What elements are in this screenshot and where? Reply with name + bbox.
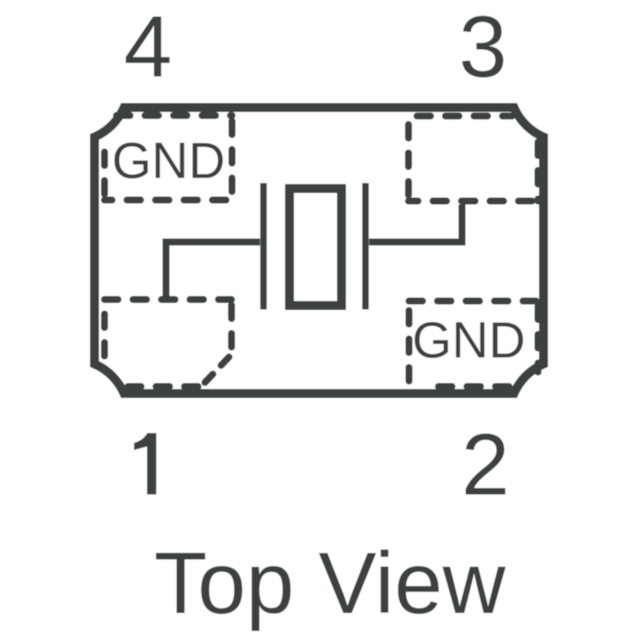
- svg-text:2: 2: [461, 417, 509, 514]
- svg-text:4: 4: [124, 0, 172, 96]
- svg-text:3: 3: [459, 0, 507, 96]
- svg-text:GND: GND: [112, 132, 225, 189]
- svg-text:GND: GND: [412, 312, 525, 369]
- svg-text:Top View: Top View: [154, 535, 507, 632]
